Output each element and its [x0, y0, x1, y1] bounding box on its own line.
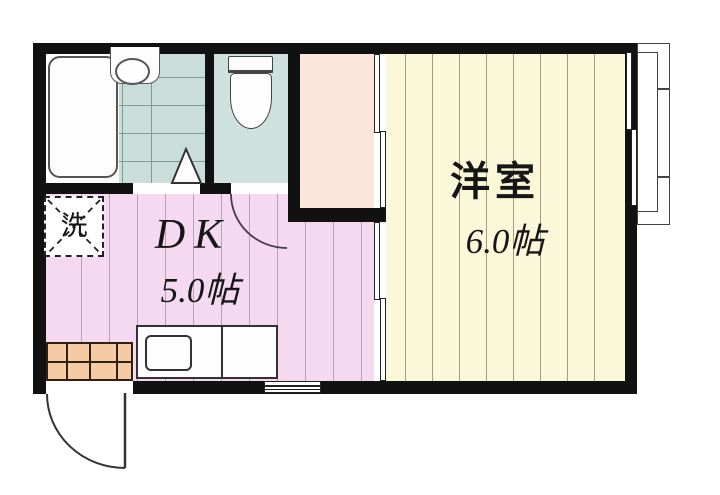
- balcony-railing-tick: [658, 176, 670, 178]
- closet-sliding-door-panel: [374, 54, 380, 133]
- closet-floor: [300, 54, 374, 208]
- window-slat: [265, 385, 320, 387]
- western-room-size: 6.0帖: [430, 224, 580, 259]
- kitchen-sink-unit: [136, 325, 278, 379]
- wall-toilet-closet: [288, 54, 300, 222]
- laundry-label: 洗: [44, 196, 104, 257]
- wall-closet-bottom: [288, 208, 386, 222]
- kitchen-counter-grid: [46, 342, 133, 381]
- dk-western-sliding-door-panel: [380, 298, 386, 381]
- wall-bath-toilet: [205, 54, 214, 194]
- balcony-railing-tick: [658, 88, 670, 90]
- toilet-door-opening: [231, 183, 288, 194]
- dk-room-size: 5.0帖: [125, 273, 275, 308]
- balcony-window-panel: [631, 129, 637, 206]
- window-slat: [265, 389, 320, 391]
- dk-western-sliding-door-panel: [374, 222, 380, 300]
- western-room-label: 洋室: [430, 162, 560, 202]
- dk-room-label: DK: [138, 214, 248, 256]
- balcony-window-panel: [626, 52, 632, 130]
- western-room-floor: [386, 54, 625, 381]
- bathtub: [48, 56, 118, 178]
- balcony-railing: [637, 52, 658, 212]
- kitchen-sink: [145, 335, 192, 371]
- bathroom-door-opening: [133, 183, 200, 194]
- kitchen-unit-divider: [221, 327, 223, 377]
- closet-sliding-door-panel: [380, 131, 386, 208]
- entrance-opening: [46, 381, 133, 394]
- entrance-door-swing-arc: [47, 394, 125, 468]
- washbasin-bowl: [115, 58, 150, 85]
- counter-grid-line: [48, 361, 131, 363]
- kitchen-window: [264, 381, 321, 393]
- floor-plan: DK 5.0帖 洋室 6.0帖 洗: [0, 0, 720, 495]
